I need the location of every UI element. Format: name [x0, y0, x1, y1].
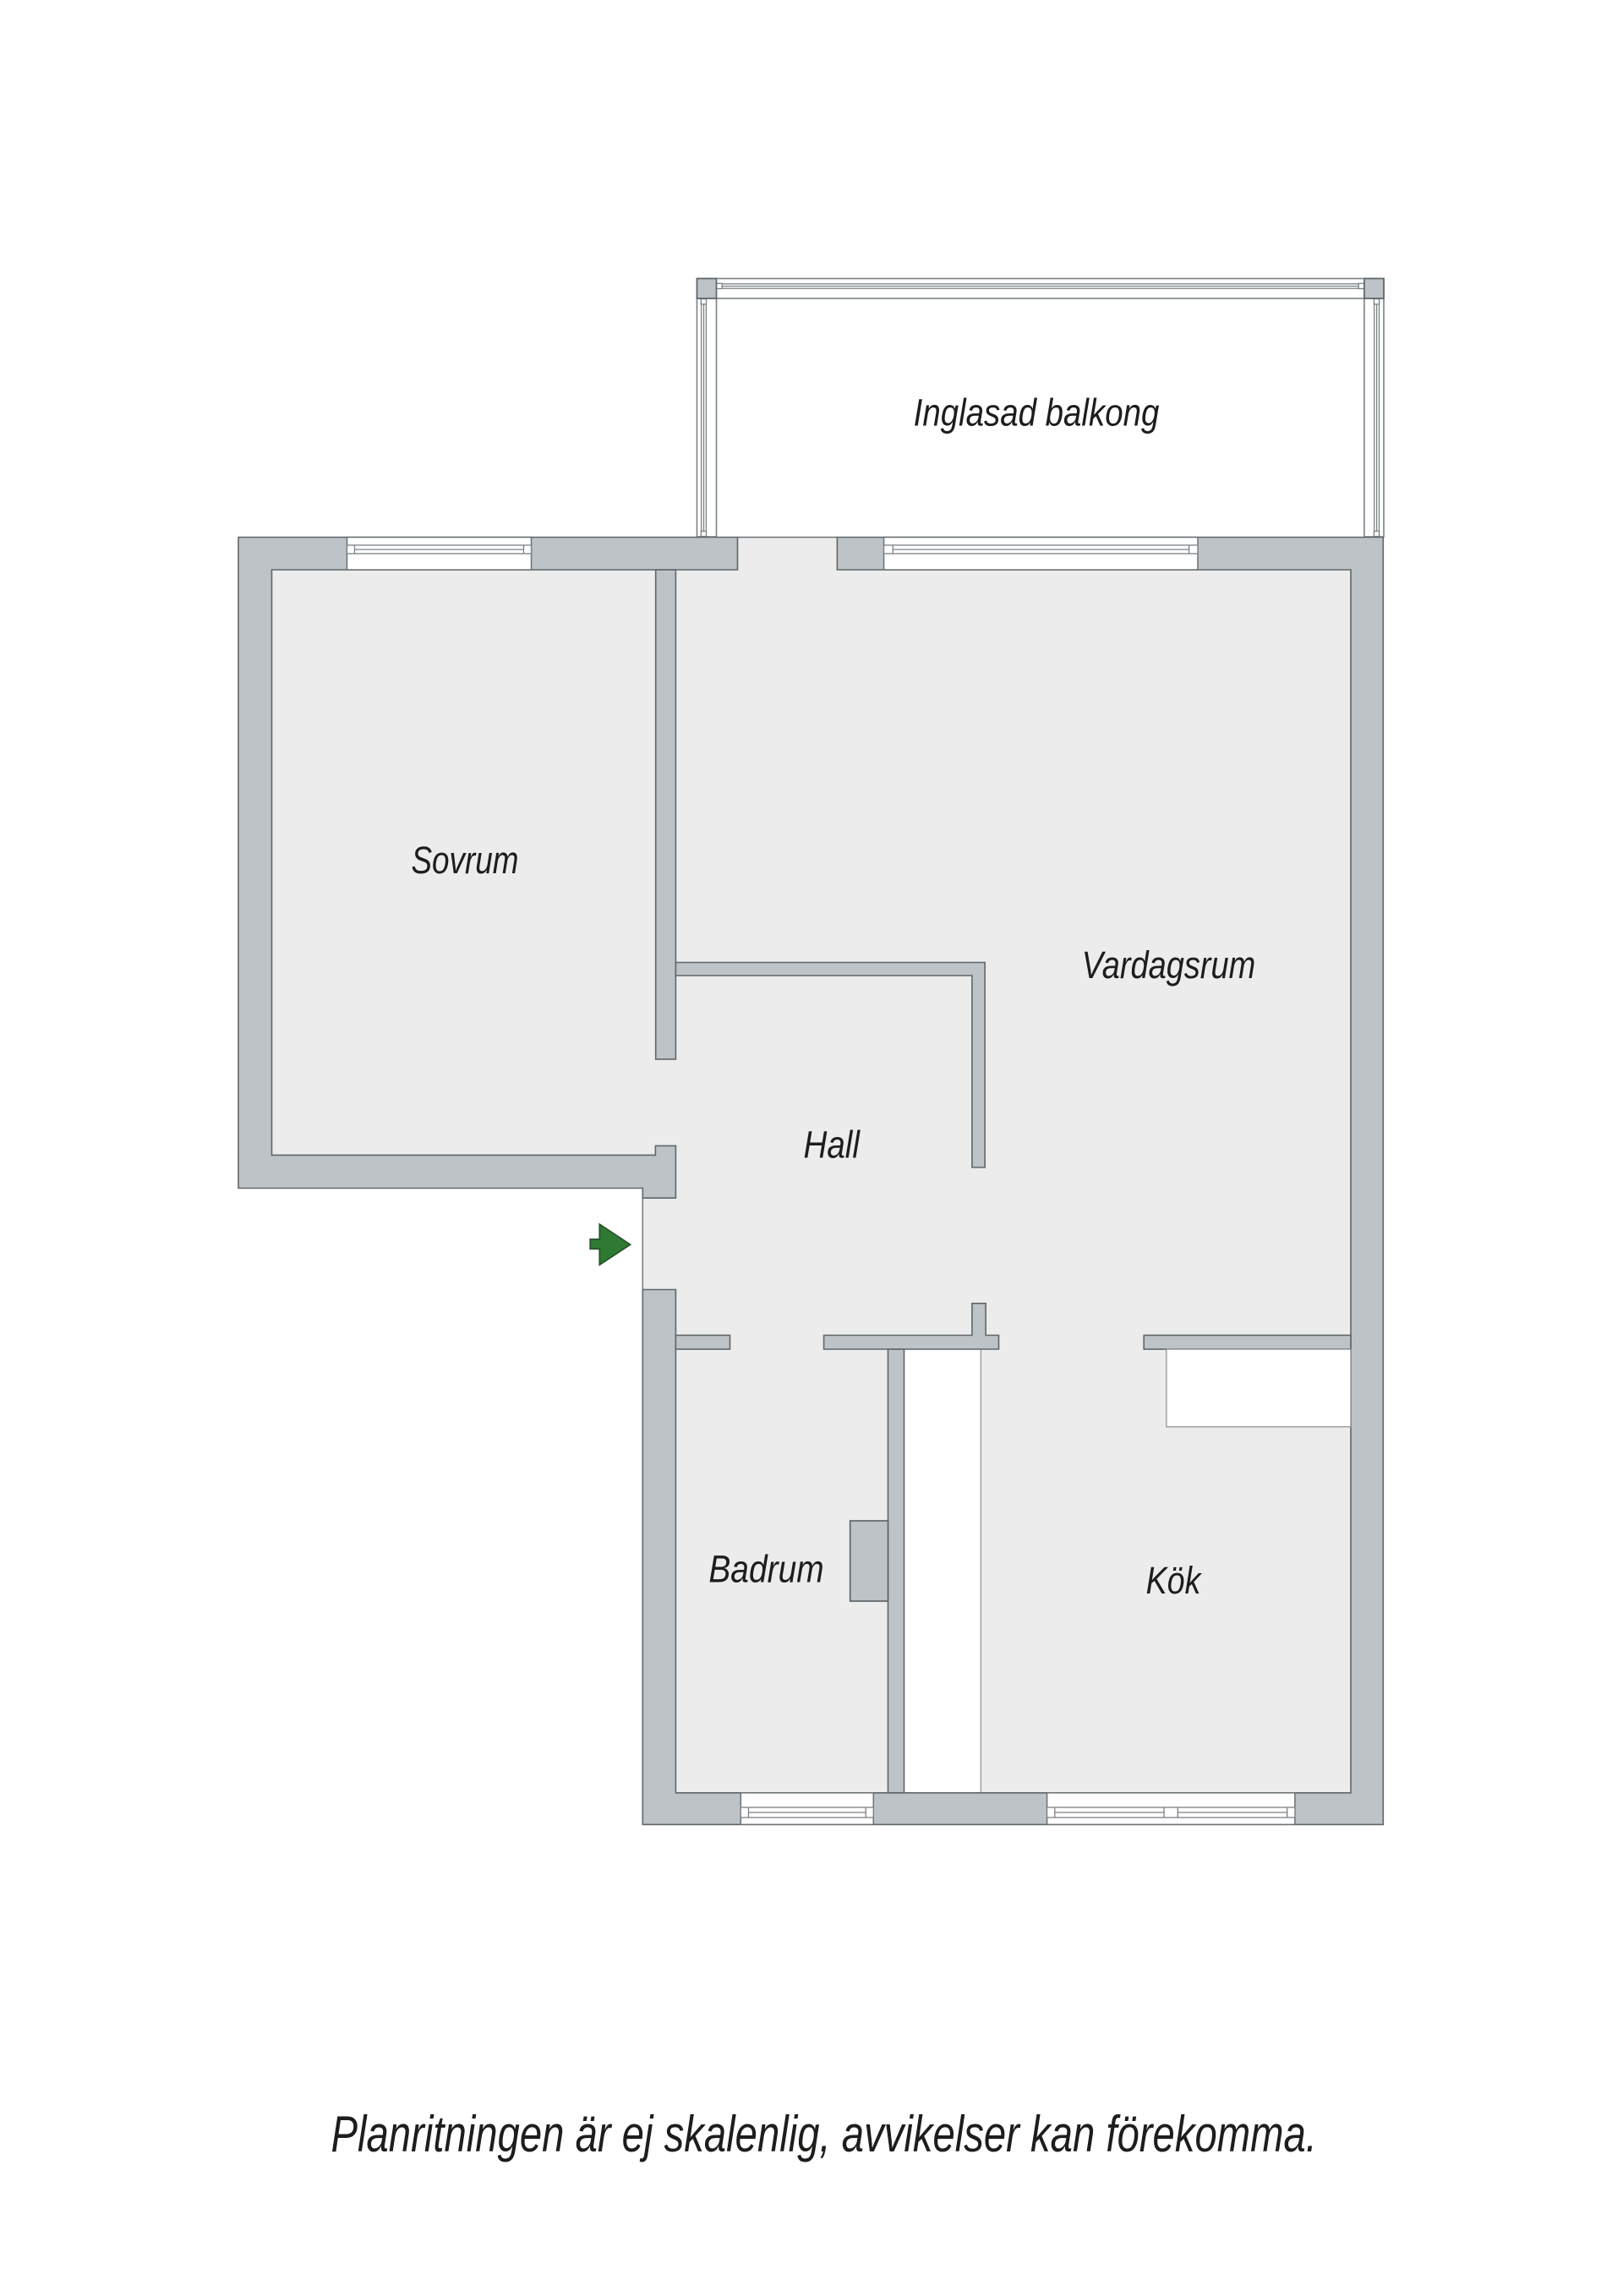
svg-text:Badrum: Badrum: [708, 1548, 823, 1591]
svg-text:Inglasad balkong: Inglasad balkong: [914, 391, 1160, 435]
svg-text:Kök: Kök: [1146, 1559, 1203, 1602]
svg-text:Hall: Hall: [804, 1123, 861, 1166]
svg-text:Vardagsrum: Vardagsrum: [1082, 943, 1255, 987]
svg-text:Planritningen är ej skalenlig,: Planritningen är ej skalenlig, avvikelse…: [331, 2106, 1317, 2162]
svg-text:Sovrum: Sovrum: [411, 839, 518, 882]
